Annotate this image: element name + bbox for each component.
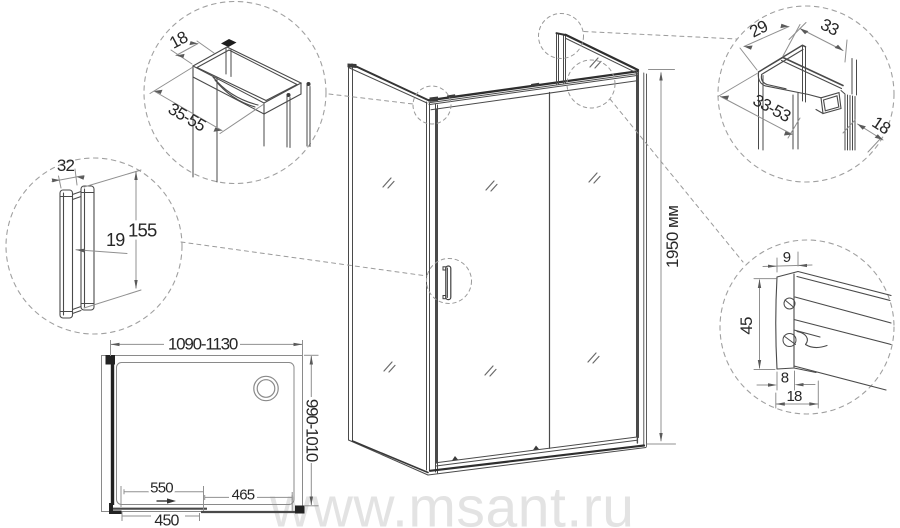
svg-text:550: 550	[150, 480, 173, 497]
svg-text:45: 45	[737, 317, 756, 335]
svg-text:1950 мм: 1950 мм	[663, 206, 682, 268]
svg-text:35-55: 35-55	[165, 99, 209, 135]
svg-text:450: 450	[154, 513, 179, 528]
svg-text:1090-1130: 1090-1130	[168, 335, 238, 354]
svg-text:29: 29	[746, 17, 770, 42]
svg-text:18: 18	[166, 28, 191, 53]
svg-text:www.msant.ru: www.msant.ru	[269, 476, 635, 528]
svg-text:990-1010: 990-1010	[303, 399, 322, 462]
svg-text:18: 18	[869, 113, 894, 139]
svg-text:19: 19	[106, 230, 125, 250]
svg-text:18: 18	[786, 388, 802, 405]
svg-text:33: 33	[817, 15, 841, 40]
svg-text:465: 465	[232, 487, 255, 504]
svg-text:32: 32	[57, 156, 75, 175]
svg-text:33-53: 33-53	[750, 90, 794, 125]
svg-text:8: 8	[781, 370, 789, 387]
svg-text:9: 9	[783, 249, 791, 266]
svg-text:155: 155	[128, 220, 157, 241]
